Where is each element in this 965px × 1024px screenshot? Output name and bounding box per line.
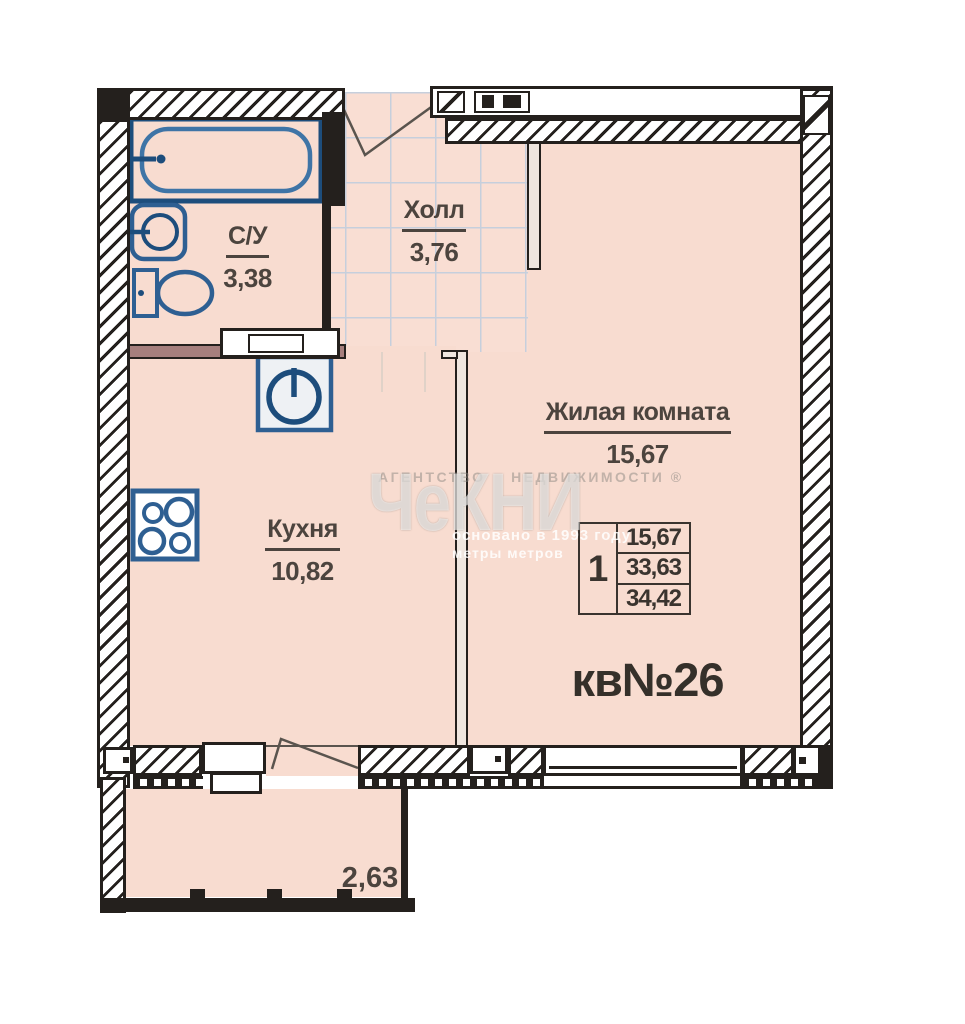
bathroom-label: С/У 3,38 — [200, 222, 295, 294]
rooms-count-cell: 1 — [580, 524, 618, 613]
living-room-label: Жилая комната 15,67 — [530, 398, 745, 470]
wall-right-exterior — [800, 88, 833, 748]
dotted-band-left — [133, 776, 203, 789]
bathroom-door-leaf — [248, 334, 304, 353]
kitchen-name: Кухня — [265, 515, 340, 551]
balcony-door-opening-floor — [266, 743, 360, 776]
wall-kitchen-living — [455, 350, 468, 747]
living-room-area: 15,67 — [530, 439, 745, 470]
wall-corner-top-left — [97, 88, 130, 122]
balcony-wall-notch-2 — [267, 889, 282, 898]
dotted-band-mid — [358, 776, 544, 789]
bottom-pier-2 — [358, 745, 470, 776]
kitchen-label: Кухня 10,82 — [250, 515, 355, 587]
living-room-window-sill — [537, 776, 743, 789]
balcony-area-label: 2,63 — [330, 862, 410, 895]
balcony-wall-left — [100, 777, 126, 913]
hall-label: Холл 3,76 — [384, 196, 484, 268]
hall-name: Холл — [402, 196, 467, 232]
balcony-wall-notch-1 — [190, 889, 205, 898]
bathroom-area: 3,38 — [200, 263, 295, 294]
bottom-corner-dark-right — [818, 745, 833, 789]
living-area-cell: 15,67 — [618, 524, 689, 554]
bottom-pier-3 — [508, 745, 544, 776]
apartment-info-table: 1 15,67 33,63 34,42 — [578, 522, 691, 615]
wall-hall-living — [527, 142, 541, 270]
kitchen-area: 10,82 — [250, 556, 355, 587]
area-wo-balcony-cell: 33,63 — [618, 554, 689, 584]
bottom-box-mid — [470, 745, 508, 774]
living-room-window-sash-line — [549, 766, 737, 769]
total-area-cell: 34,42 — [618, 585, 689, 613]
bottom-box-mid-dot — [495, 756, 501, 762]
bottom-pier-4 — [742, 745, 794, 776]
corridor-mark-b-glyph1 — [482, 95, 494, 108]
hall-area: 3,76 — [384, 237, 484, 268]
bottom-corner-box-right-dot — [799, 757, 806, 764]
wall-top-bathroom — [97, 88, 345, 120]
bottom-pier-1 — [133, 745, 202, 776]
living-room-window — [543, 745, 743, 776]
wall-bathroom-right-thick — [322, 112, 345, 206]
wall-kitchen-living-jamb — [441, 350, 458, 359]
wall-right-top-box — [803, 95, 830, 135]
living-room-name: Жилая комната — [544, 398, 732, 434]
balcony-wall-bottom — [100, 898, 415, 912]
bathroom-name: С/У — [226, 222, 269, 258]
wall-top-living — [445, 118, 807, 144]
areas-column: 15,67 33,63 34,42 — [618, 524, 689, 613]
balcony-door-opening-line — [266, 745, 360, 747]
corridor-mark-b-glyph2 — [503, 95, 521, 108]
apartment-number-label: кв№26 — [545, 652, 750, 707]
balcony-door-threshold — [210, 772, 262, 794]
bottom-corner-box-left-dot — [123, 757, 129, 763]
wall-left-exterior — [97, 88, 130, 788]
balcony-window-block — [202, 742, 266, 774]
wall-bathroom-right-thin — [322, 206, 331, 332]
corridor-mark-a — [437, 91, 465, 113]
